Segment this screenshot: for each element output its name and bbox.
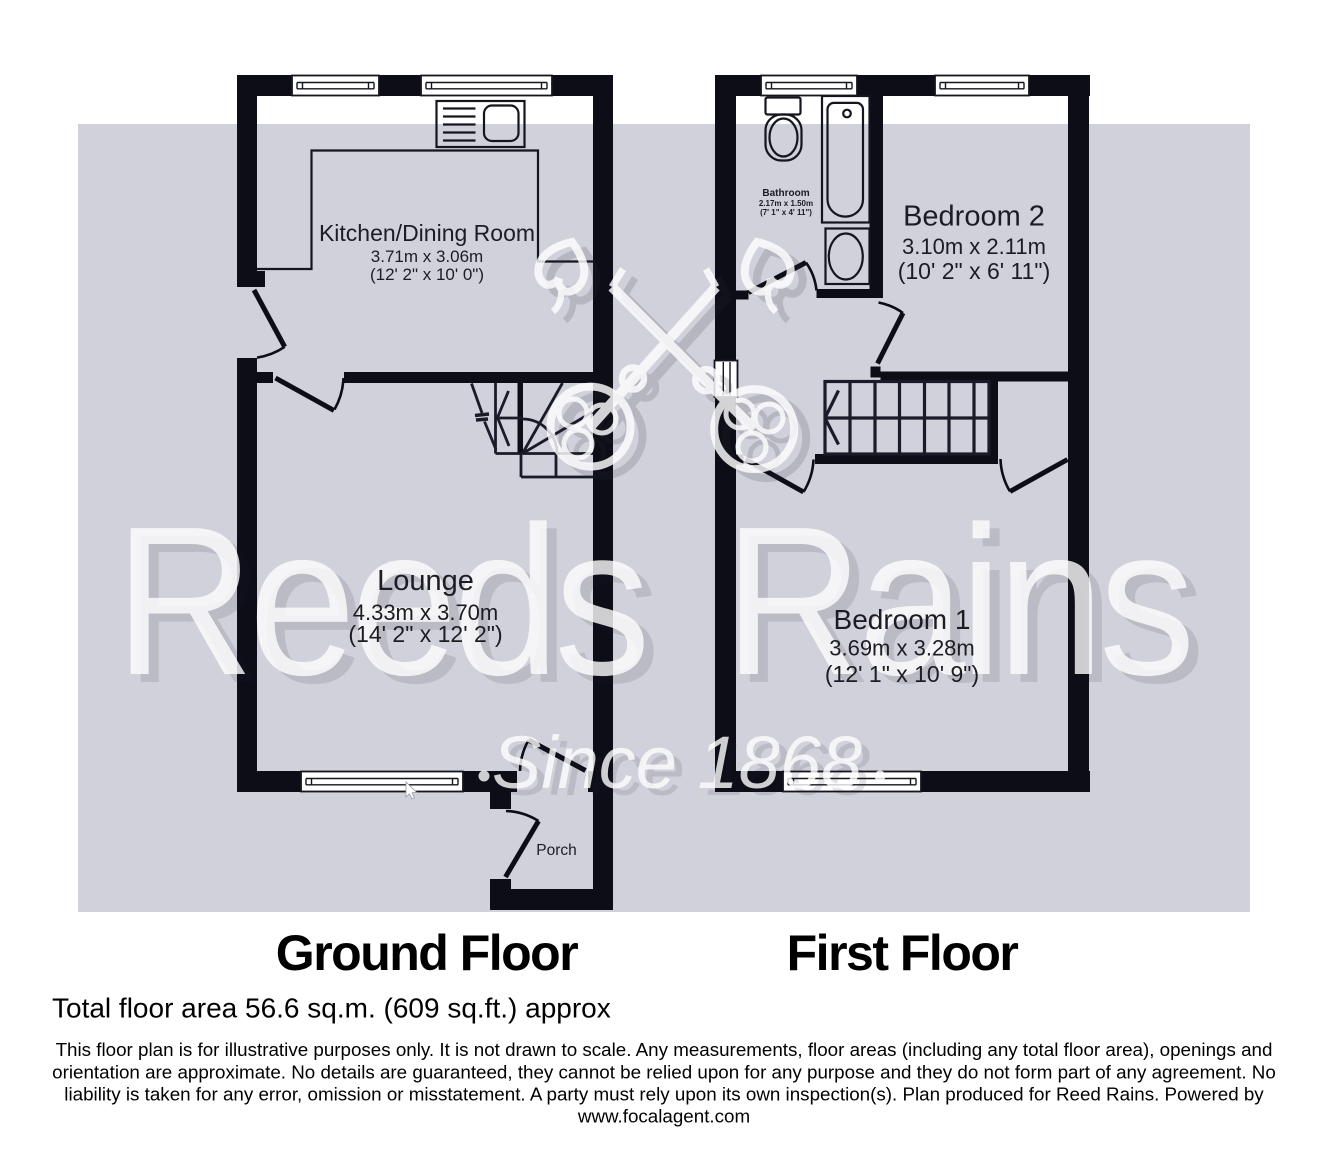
- svg-text:2.17m x 1.50m: 2.17m x 1.50m: [759, 199, 813, 208]
- svg-text:(10' 2" x 6' 11"): (10' 2" x 6' 11"): [898, 258, 1051, 284]
- svg-text:liability is taken for any err: liability is taken for any error, omissi…: [64, 1084, 1264, 1105]
- svg-text:Porch: Porch: [536, 842, 577, 859]
- svg-text:Bedroom 1: Bedroom 1: [834, 604, 971, 635]
- svg-text:(7' 1" x 4' 11"): (7' 1" x 4' 11"): [760, 208, 812, 217]
- svg-text:3.69m x 3.28m: 3.69m x 3.28m: [829, 636, 975, 661]
- svg-text:(12' 2" x 10' 0"): (12' 2" x 10' 0"): [370, 265, 484, 284]
- svg-text:Ground Floor: Ground Floor: [276, 925, 578, 981]
- svg-text:Since 1868: Since 1868: [492, 721, 862, 804]
- svg-text:3.10m x 2.11m: 3.10m x 2.11m: [902, 234, 1046, 259]
- svg-text:orientation are approximate. N: orientation are approximate. No details …: [52, 1061, 1276, 1082]
- svg-text:This floor plan is for illustr: This floor plan is for illustrative purp…: [56, 1039, 1273, 1060]
- svg-text:Kitchen/Dining Room: Kitchen/Dining Room: [319, 220, 535, 246]
- svg-text:www.focalagent.com: www.focalagent.com: [577, 1106, 750, 1127]
- svg-text:Lounge: Lounge: [377, 565, 474, 597]
- svg-text:3.71m x 3.06m: 3.71m x 3.06m: [371, 247, 483, 266]
- svg-text:(12' 1" x 10' 9"): (12' 1" x 10' 9"): [825, 661, 979, 687]
- svg-text:Total floor area 56.6 sq.m. (6: Total floor area 56.6 sq.m. (609 sq.ft.)…: [52, 993, 611, 1024]
- svg-text:(14' 2" x 12' 2"): (14' 2" x 12' 2"): [348, 621, 502, 647]
- svg-text:Bathroom: Bathroom: [762, 188, 809, 199]
- svg-text:Bedroom 2: Bedroom 2: [903, 201, 1045, 233]
- svg-text:First Floor: First Floor: [787, 925, 1019, 981]
